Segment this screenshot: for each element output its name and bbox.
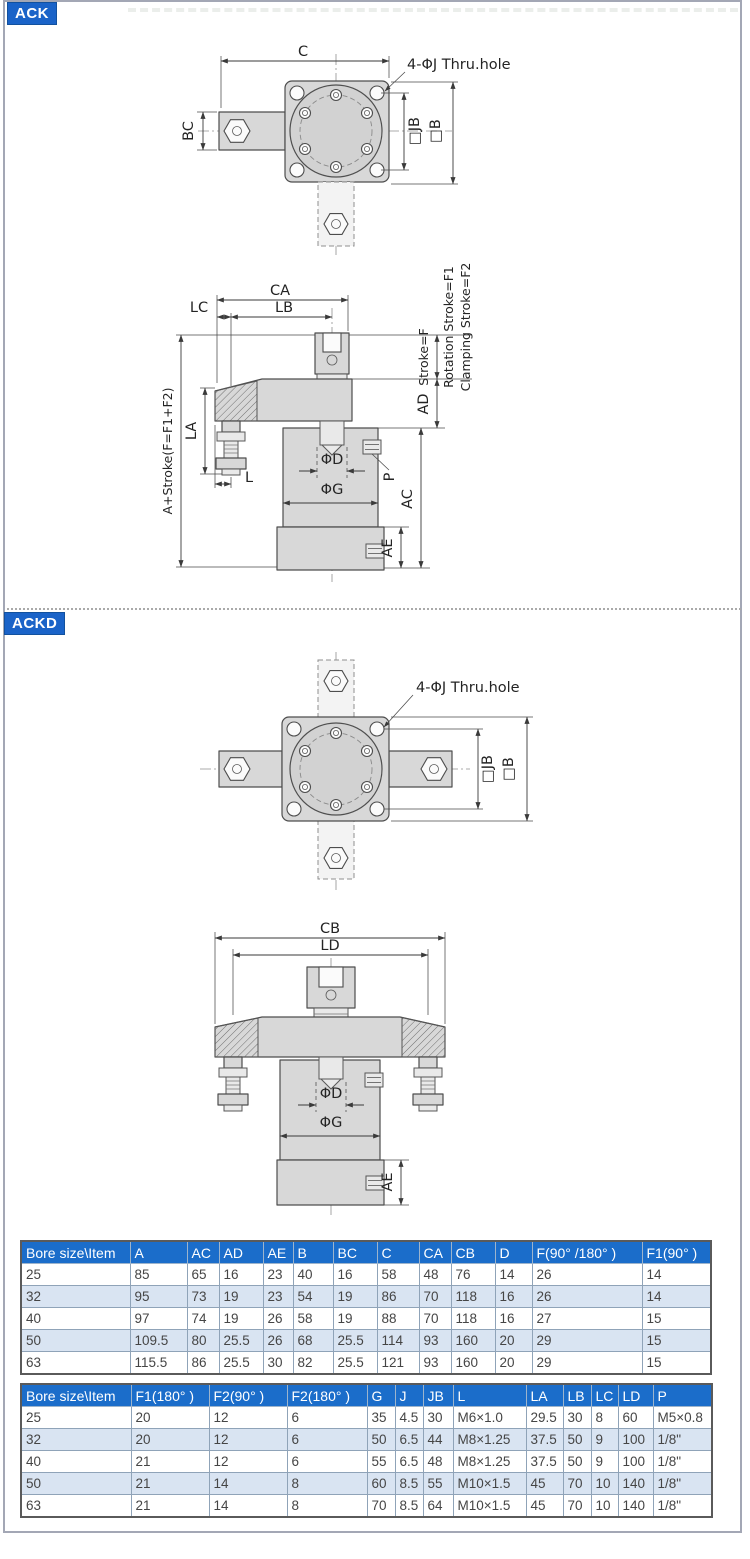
table-cell: 1/8" [653, 1495, 712, 1518]
table-cell: 8.5 [395, 1473, 423, 1495]
table-cell: 29 [532, 1330, 642, 1352]
note-clamping-stroke: Clamping Stroke=F2 [458, 263, 473, 392]
hatched-section [215, 381, 257, 421]
dim-label-ae: AE [380, 1172, 396, 1191]
table-cell: 76 [451, 1264, 495, 1286]
table-cell: 1/8" [653, 1451, 712, 1473]
column-header: Bore size\Item [21, 1384, 131, 1407]
table-cell: 16 [495, 1286, 532, 1308]
dimensions-table-ack-2: Bore size\ItemF1(180° )F2(90° )F2(180° )… [20, 1383, 713, 1518]
table-cell: 86 [377, 1286, 419, 1308]
table-cell: M6×1.0 [453, 1407, 526, 1429]
table-cell: 25.5 [333, 1352, 377, 1375]
table-cell: 115.5 [130, 1352, 187, 1375]
table-cell: 15 [642, 1308, 711, 1330]
table-cell: 160 [451, 1330, 495, 1352]
column-header: G [367, 1384, 395, 1407]
table-cell: 25 [21, 1407, 131, 1429]
table-cell: 6 [287, 1407, 367, 1429]
table-cell: 20 [131, 1407, 209, 1429]
table-cell: 6 [287, 1429, 367, 1451]
column-header: CB [451, 1241, 495, 1264]
table-cell: 19 [219, 1286, 263, 1308]
table-cell: 60 [618, 1407, 653, 1429]
table-cell: 50 [367, 1429, 395, 1451]
table-cell: 21 [131, 1473, 209, 1495]
table-row: 329573192354198670118162614 [21, 1286, 711, 1308]
table-cell: 32 [21, 1429, 131, 1451]
table-cell: 19 [219, 1308, 263, 1330]
ackd-stud-bolt-right [413, 1057, 443, 1111]
table-cell: 35 [367, 1407, 395, 1429]
table-cell: 19 [333, 1286, 377, 1308]
column-header: AC [187, 1241, 219, 1264]
dim-label-b: □B [428, 119, 444, 143]
ackd-stud-bolt-left [218, 1057, 248, 1111]
table-cell: 14 [642, 1264, 711, 1286]
table-cell: 8 [287, 1473, 367, 1495]
table-row: 63115.58625.5308225.512193160202915 [21, 1352, 711, 1375]
table-cell: 14 [642, 1286, 711, 1308]
column-header: BC [333, 1241, 377, 1264]
dim-label-phi-d: ΦD [321, 452, 344, 468]
table-cell: 29 [532, 1352, 642, 1375]
callout-thru-hole: 4-ΦJ Thru.hole [416, 680, 520, 696]
table-cell: 20 [131, 1429, 209, 1451]
table-cell: 26 [263, 1308, 293, 1330]
ack-top-view-drawing: C 4-ΦJ Thru.hole BC □JB □B [181, 44, 511, 258]
table-cell: 121 [377, 1352, 419, 1375]
table-cell: 100 [618, 1429, 653, 1451]
column-header: F1(180° ) [131, 1384, 209, 1407]
hex-nut-icon [324, 848, 348, 869]
dim-label-cb: CB [320, 921, 340, 937]
table-cell: 27 [532, 1308, 642, 1330]
table-cell: 50 [563, 1429, 591, 1451]
table-row: 5021148608.555M10×1.54570101401/8" [21, 1473, 712, 1495]
table-cell: 12 [209, 1429, 287, 1451]
table-cell: 160 [451, 1352, 495, 1375]
table-cell: 6.5 [395, 1451, 423, 1473]
table-cell: 25.5 [219, 1352, 263, 1375]
table-cell: 23 [263, 1264, 293, 1286]
table-cell: 9 [591, 1451, 618, 1473]
hex-nut-icon [324, 214, 348, 235]
table-cell: 25 [21, 1264, 130, 1286]
table-cell: 21 [131, 1451, 209, 1473]
table-row: 25856516234016584876142614 [21, 1264, 711, 1286]
table-cell: 1/8" [653, 1473, 712, 1495]
table-cell: 8.5 [395, 1495, 423, 1518]
column-header: LA [526, 1384, 563, 1407]
column-header: LC [591, 1384, 618, 1407]
table-cell: M10×1.5 [453, 1495, 526, 1518]
dim-label-l: L [245, 470, 253, 486]
table-cell: 85 [130, 1264, 187, 1286]
column-header: F(90° /180° ) [532, 1241, 642, 1264]
table-cell: 93 [419, 1352, 451, 1375]
table-row: 2520126354.530M6×1.029.530860M5×0.8 [21, 1407, 712, 1429]
table-cell: 15 [642, 1352, 711, 1375]
ack-side-view-drawing: CA LB LC A+Stroke(F=F1+F2) LA L [160, 263, 473, 582]
table-cell: 118 [451, 1308, 495, 1330]
column-header: L [453, 1384, 526, 1407]
table-cell: 48 [419, 1264, 451, 1286]
dim-label-la: LA [184, 422, 200, 440]
catalog-page: ACK ACKD [0, 0, 750, 1559]
table-row: 6321148708.564M10×1.54570101401/8" [21, 1495, 712, 1518]
column-header: JB [423, 1384, 453, 1407]
dim-label-phi-d: ΦD [320, 1086, 343, 1102]
table-cell: 37.5 [526, 1429, 563, 1451]
callout-thru-hole: 4-ΦJ Thru.hole [407, 57, 511, 73]
table-row: 3220126506.544M8×1.2537.55091001/8" [21, 1429, 712, 1451]
table-row: 4021126556.548M8×1.2537.55091001/8" [21, 1451, 712, 1473]
dim-label-bc: BC [181, 121, 197, 141]
table-cell: 70 [563, 1473, 591, 1495]
table-cell: 30 [563, 1407, 591, 1429]
table-cell: 44 [423, 1429, 453, 1451]
column-header: C [377, 1241, 419, 1264]
technical-drawings: C 4-ΦJ Thru.hole BC □JB □B [0, 0, 750, 1232]
table-cell: 14 [209, 1495, 287, 1518]
table-cell: 10 [591, 1473, 618, 1495]
table-cell: 32 [21, 1286, 130, 1308]
table-cell: 25.5 [333, 1330, 377, 1352]
table-cell: 64 [423, 1495, 453, 1518]
table-cell: 26 [532, 1286, 642, 1308]
air-port-icon [363, 440, 381, 454]
table-cell: 88 [377, 1308, 419, 1330]
table-cell: 20 [495, 1352, 532, 1375]
table-cell: 30 [423, 1407, 453, 1429]
header-row: Bore size\ItemAACADAEBBCCCACBDF(90° /180… [21, 1241, 711, 1264]
table-cell: 50 [21, 1473, 131, 1495]
ackd-side-view-drawing: CB LD ΦD ΦG AE [215, 921, 445, 1215]
table-cell: 45 [526, 1495, 563, 1518]
table-cell: 58 [293, 1308, 333, 1330]
column-header: D [495, 1241, 532, 1264]
dim-label-a-stroke: A+Stroke(F=F1+F2) [160, 387, 175, 514]
table-cell: M8×1.25 [453, 1451, 526, 1473]
table-cell: 20 [495, 1330, 532, 1352]
dim-label-jb: □JB [480, 755, 496, 783]
table-cell: 15 [642, 1330, 711, 1352]
column-header: CA [419, 1241, 451, 1264]
table-cell: 55 [423, 1473, 453, 1495]
table-cell: 12 [209, 1407, 287, 1429]
dim-label-ld: LD [320, 938, 339, 954]
table-cell: M5×0.8 [653, 1407, 712, 1429]
column-header: A [130, 1241, 187, 1264]
table-cell: 95 [130, 1286, 187, 1308]
table-cell: 140 [618, 1495, 653, 1518]
column-header: F1(90° ) [642, 1241, 711, 1264]
note-rotation-stroke: Rotation Stroke=F1 [441, 266, 456, 388]
table-cell: 14 [209, 1473, 287, 1495]
table-cell: 48 [423, 1451, 453, 1473]
column-header: J [395, 1384, 423, 1407]
table-cell: 93 [419, 1330, 451, 1352]
table-cell: 74 [187, 1308, 219, 1330]
table-cell: 73 [187, 1286, 219, 1308]
table-cell: 40 [21, 1308, 130, 1330]
table-cell: 68 [293, 1330, 333, 1352]
table-cell: 55 [367, 1451, 395, 1473]
hex-nut-icon [324, 671, 348, 692]
hatched-section [215, 1018, 258, 1057]
column-header: F2(90° ) [209, 1384, 287, 1407]
table-cell: 45 [526, 1473, 563, 1495]
table-cell: 40 [293, 1264, 333, 1286]
table-cell: 8 [287, 1495, 367, 1518]
dim-label-phi-g: ΦG [321, 482, 344, 498]
table-cell: 50 [563, 1451, 591, 1473]
dim-label-phi-g: ΦG [320, 1115, 343, 1131]
column-header: P [653, 1384, 712, 1407]
column-header: AD [219, 1241, 263, 1264]
table-cell: 1/8" [653, 1429, 712, 1451]
dim-label-lb: LB [275, 300, 293, 316]
table-cell: 40 [21, 1451, 131, 1473]
table-cell: 63 [21, 1352, 130, 1375]
table-cell: 8 [591, 1407, 618, 1429]
table-cell: 9 [591, 1429, 618, 1451]
table-cell: 70 [367, 1495, 395, 1518]
table-cell: 100 [618, 1451, 653, 1473]
table-cell: 70 [563, 1495, 591, 1518]
table-cell: 140 [618, 1473, 653, 1495]
ack-stud-bolt [216, 421, 246, 475]
table-cell: 50 [21, 1330, 130, 1352]
table-cell: 114 [377, 1330, 419, 1352]
table-cell: 63 [21, 1495, 131, 1518]
dim-label-jb: □JB [407, 117, 423, 145]
table-cell: 14 [495, 1264, 532, 1286]
table-cell: 65 [187, 1264, 219, 1286]
header-row: Bore size\ItemF1(180° )F2(90° )F2(180° )… [21, 1384, 712, 1407]
dim-label-b: □B [501, 757, 517, 781]
table-cell: 23 [263, 1286, 293, 1308]
table-cell: 6 [287, 1451, 367, 1473]
dim-label-ad: AD [416, 393, 432, 414]
table-row: 409774192658198870118162715 [21, 1308, 711, 1330]
table-cell: 60 [367, 1473, 395, 1495]
dim-label-p: P [382, 472, 398, 481]
table-cell: 12 [209, 1451, 287, 1473]
table-cell: 29.5 [526, 1407, 563, 1429]
table-cell: 82 [293, 1352, 333, 1375]
column-header: B [293, 1241, 333, 1264]
table-cell: M10×1.5 [453, 1473, 526, 1495]
table-cell: 109.5 [130, 1330, 187, 1352]
hatched-section [402, 1018, 445, 1058]
table-cell: 16 [219, 1264, 263, 1286]
table-cell: 26 [263, 1330, 293, 1352]
table-cell: 26 [532, 1264, 642, 1286]
dim-label-ac: AC [400, 489, 416, 509]
table-cell: 30 [263, 1352, 293, 1375]
table-cell: 80 [187, 1330, 219, 1352]
column-header: F2(180° ) [287, 1384, 367, 1407]
dim-label-ae: AE [380, 538, 396, 557]
column-header: AE [263, 1241, 293, 1264]
table-cell: 37.5 [526, 1451, 563, 1473]
air-port-icon [365, 1073, 383, 1087]
table-cell: 58 [377, 1264, 419, 1286]
ackd-top-view-drawing: 4-ΦJ Thru.hole □JB □B [200, 652, 533, 890]
table-cell: 16 [495, 1308, 532, 1330]
dimensions-table-ack: Bore size\ItemAACADAEBBCCCACBDF(90° /180… [20, 1240, 712, 1375]
table-cell: 25.5 [219, 1330, 263, 1352]
table-cell: 70 [419, 1308, 451, 1330]
table-cell: 70 [419, 1286, 451, 1308]
dim-label-ca: CA [270, 283, 290, 299]
table-cell: 6.5 [395, 1429, 423, 1451]
table-cell: M8×1.25 [453, 1429, 526, 1451]
table-cell: 118 [451, 1286, 495, 1308]
table-cell: 16 [333, 1264, 377, 1286]
dim-label-stroke-f: Stroke=F [416, 328, 431, 386]
table-cell: 86 [187, 1352, 219, 1375]
table-cell: 97 [130, 1308, 187, 1330]
dim-label-c: C [298, 44, 308, 60]
table-cell: 19 [333, 1308, 377, 1330]
table-cell: 21 [131, 1495, 209, 1518]
table-cell: 4.5 [395, 1407, 423, 1429]
column-header: Bore size\Item [21, 1241, 130, 1264]
table-cell: 10 [591, 1495, 618, 1518]
table-row: 50109.58025.5266825.511493160202915 [21, 1330, 711, 1352]
column-header: LB [563, 1384, 591, 1407]
table-cell: 54 [293, 1286, 333, 1308]
dim-label-lc: LC [190, 300, 208, 316]
column-header: LD [618, 1384, 653, 1407]
